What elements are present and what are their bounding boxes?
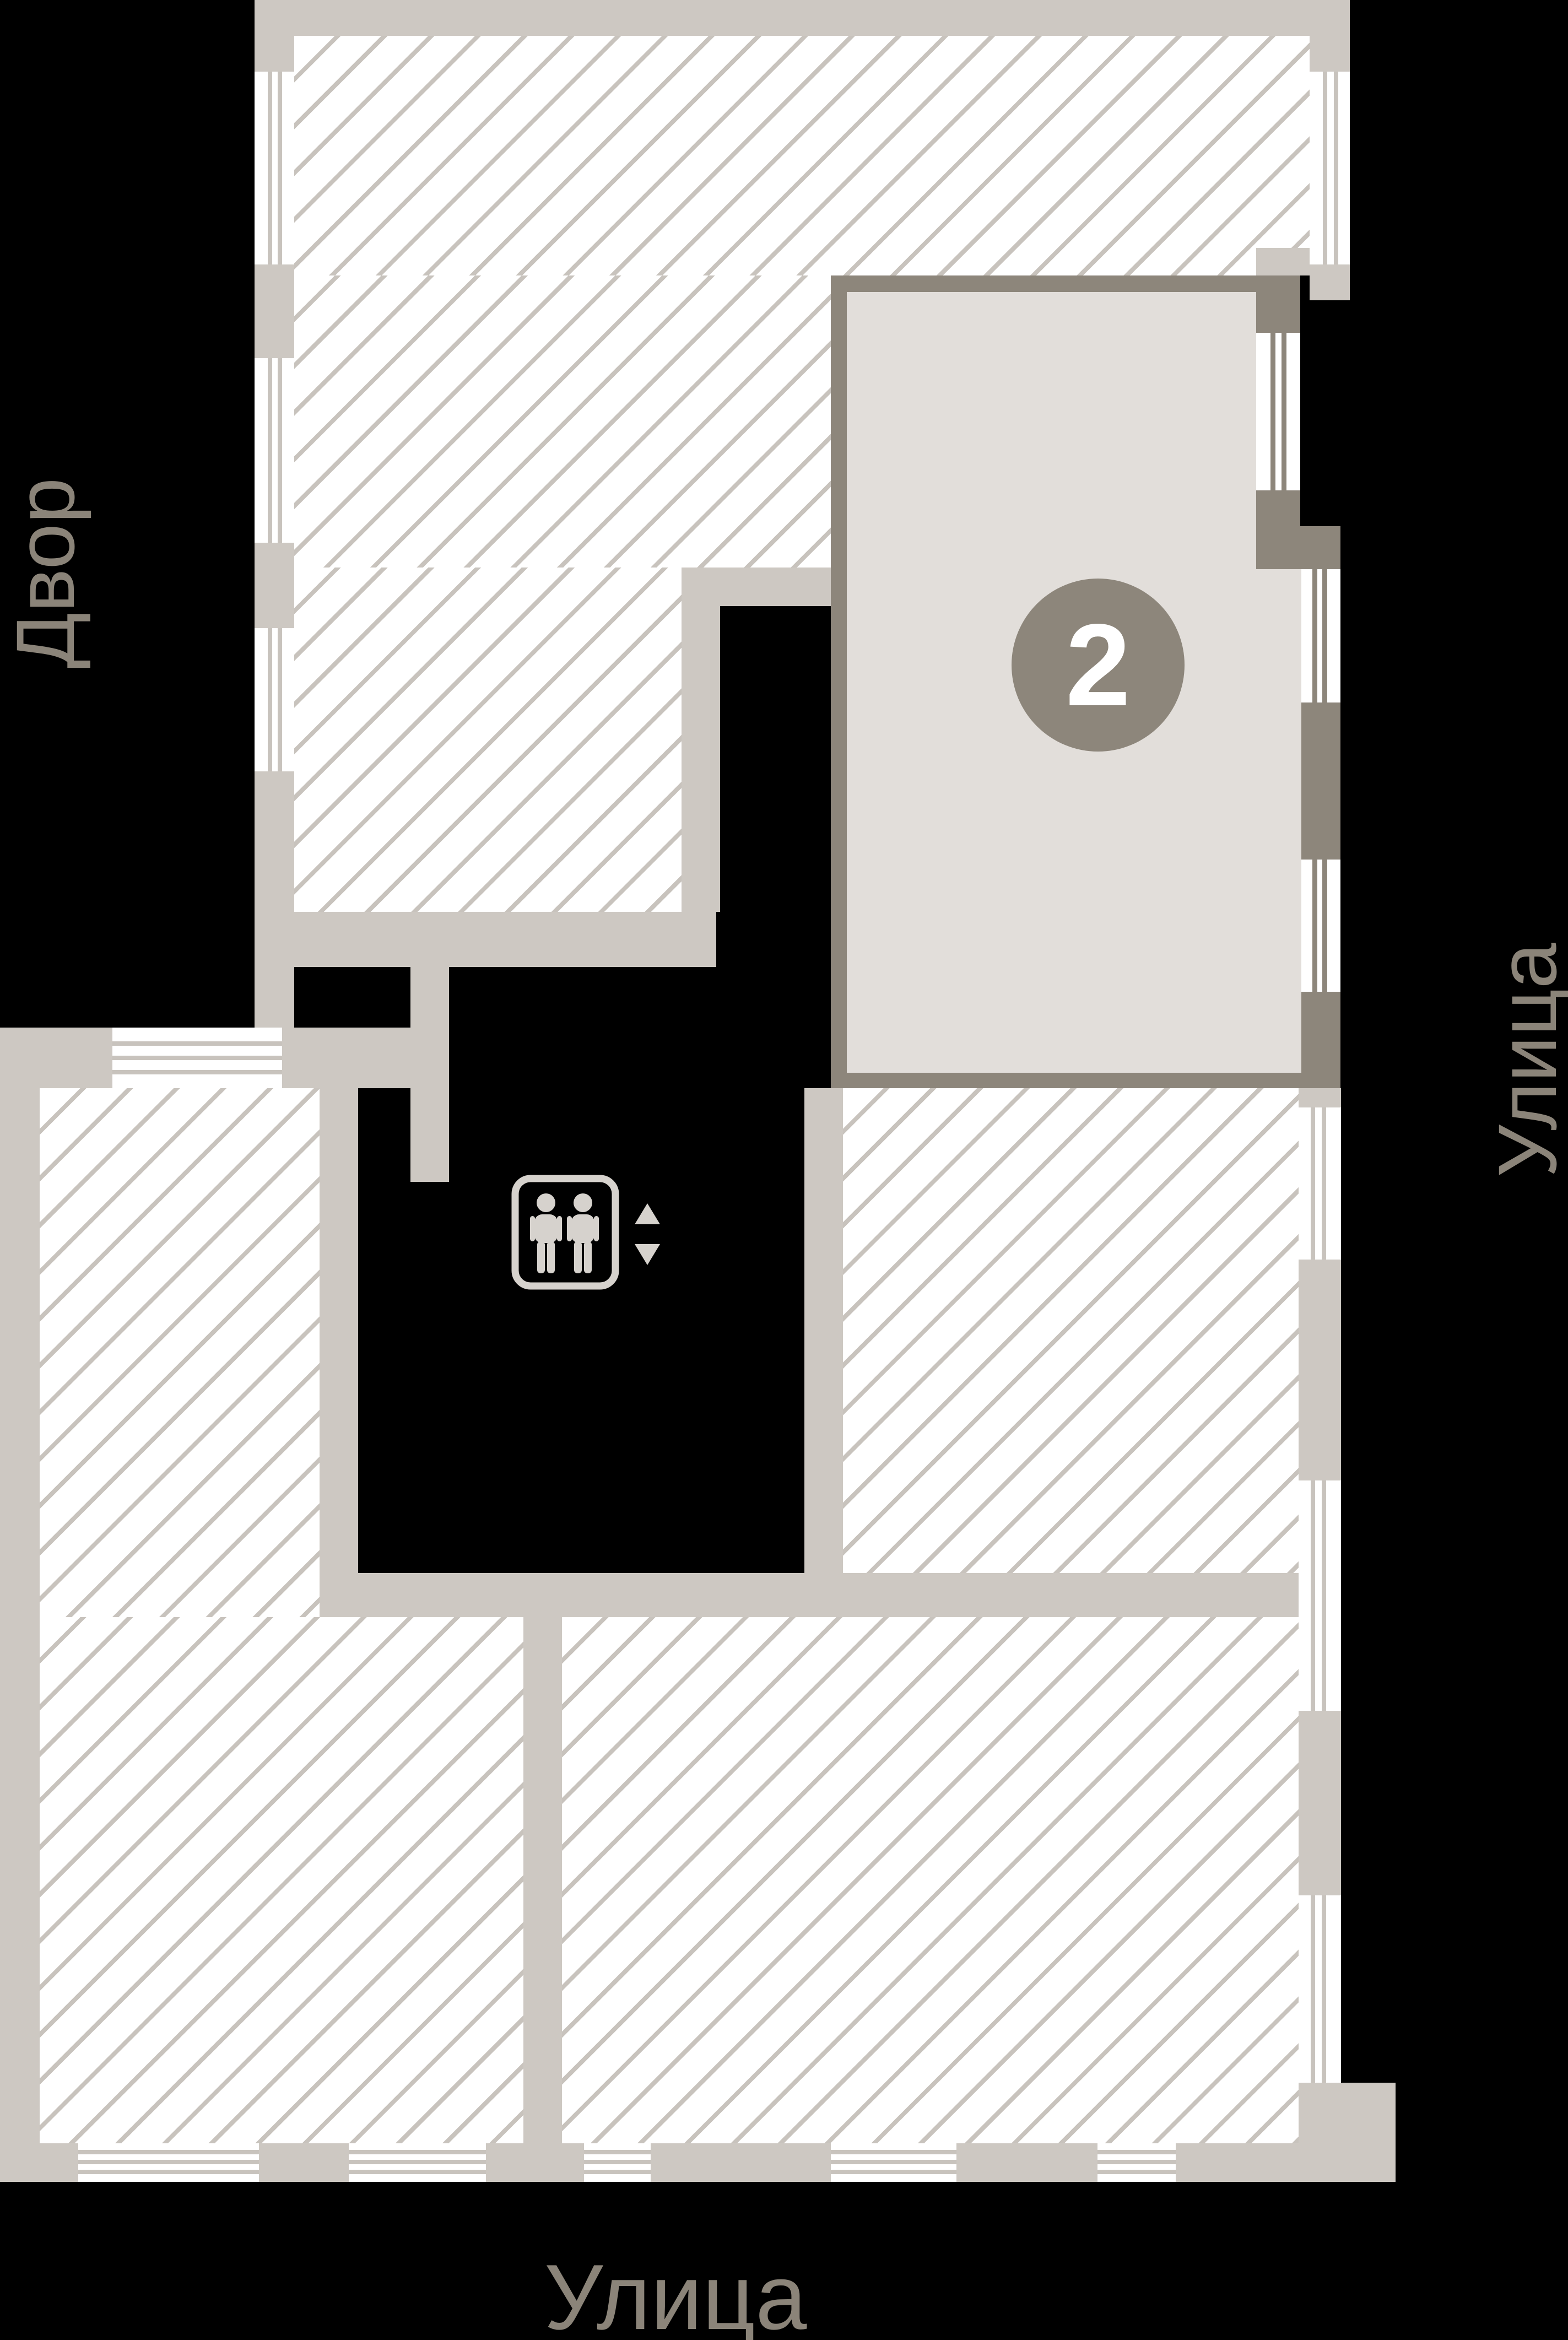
window — [1299, 1480, 1341, 1711]
elevator-down-arrow-icon — [635, 1244, 660, 1265]
window — [78, 2143, 259, 2182]
unit-2-window — [1301, 569, 1340, 702]
wall-segment — [1310, 0, 1350, 72]
window — [1310, 72, 1350, 264]
unit-2-number: 2 — [1066, 598, 1131, 732]
wall-segment — [255, 967, 294, 1028]
wall-segment — [651, 2143, 831, 2182]
wall-segment — [320, 1573, 1299, 1617]
unit-2-badge[interactable]: 2 — [1012, 579, 1185, 752]
window — [1299, 1107, 1341, 1260]
label-street-right: Улица — [1486, 939, 1568, 1181]
wall-segment — [1299, 1711, 1341, 1895]
unit-2-wall — [831, 1073, 1340, 1088]
unit-hatched-bottom-center — [562, 1617, 1299, 2143]
unit-2-wall — [1256, 275, 1300, 333]
wall-segment — [255, 0, 1350, 36]
wall-segment — [804, 1088, 843, 1573]
floor-plan: 2 Двор Улица Улица — [0, 0, 1568, 2340]
wall-segment — [956, 2143, 1097, 2182]
wall-segment — [320, 1088, 358, 1573]
wall-segment — [255, 264, 294, 358]
window — [584, 2143, 651, 2182]
wall-segment — [1299, 1088, 1341, 1107]
window — [349, 2143, 486, 2182]
wall-segment — [716, 568, 831, 606]
unit-2-window — [1301, 860, 1340, 992]
wall-segment — [1299, 2083, 1396, 2182]
wall-segment — [255, 912, 716, 967]
window — [1299, 1895, 1341, 2083]
window — [112, 1028, 282, 1088]
window — [255, 72, 294, 264]
unit-hatched-top — [294, 36, 1310, 275]
wall-segment — [410, 967, 449, 1182]
wall-segment — [682, 568, 720, 912]
unit-2-wall — [831, 275, 847, 1088]
unit-hatched-right-middle — [843, 1088, 1299, 1573]
unit-2[interactable] — [847, 292, 1256, 569]
wall-segment — [1299, 1260, 1341, 1480]
unit-2-wall — [1256, 490, 1300, 569]
wall-segment — [255, 0, 294, 72]
wall-segment — [255, 771, 294, 912]
unit-hatched-top — [294, 568, 682, 912]
elevator-up-arrow-icon — [635, 1203, 660, 1224]
window — [255, 358, 294, 543]
unit-hatched-top — [294, 275, 831, 568]
wall-segment — [40, 2143, 78, 2182]
wall-segment — [1176, 2143, 1299, 2182]
unit-2-wall — [831, 275, 1300, 292]
unit-2-window — [1256, 333, 1300, 490]
unit-2-wall — [1301, 992, 1340, 1073]
unit-2-wall — [1301, 702, 1340, 860]
window — [1097, 2143, 1176, 2182]
unit-2-wall — [1300, 526, 1340, 569]
label-street-bottom: Улица — [538, 2251, 813, 2340]
label-courtyard: Двор — [4, 463, 86, 683]
wall-segment — [523, 1617, 562, 2143]
wall-segment — [0, 1028, 40, 2182]
unit-hatched-left — [40, 1617, 523, 2143]
wall-segment — [486, 2143, 584, 2182]
unit-hatched-left — [40, 1088, 320, 1617]
wall-segment — [1310, 264, 1350, 300]
window — [255, 628, 294, 771]
wall-segment — [1256, 248, 1311, 275]
wall-segment — [255, 543, 294, 628]
wall-segment — [259, 2143, 349, 2182]
window — [831, 2143, 956, 2182]
elevator-icon — [511, 1174, 620, 1290]
